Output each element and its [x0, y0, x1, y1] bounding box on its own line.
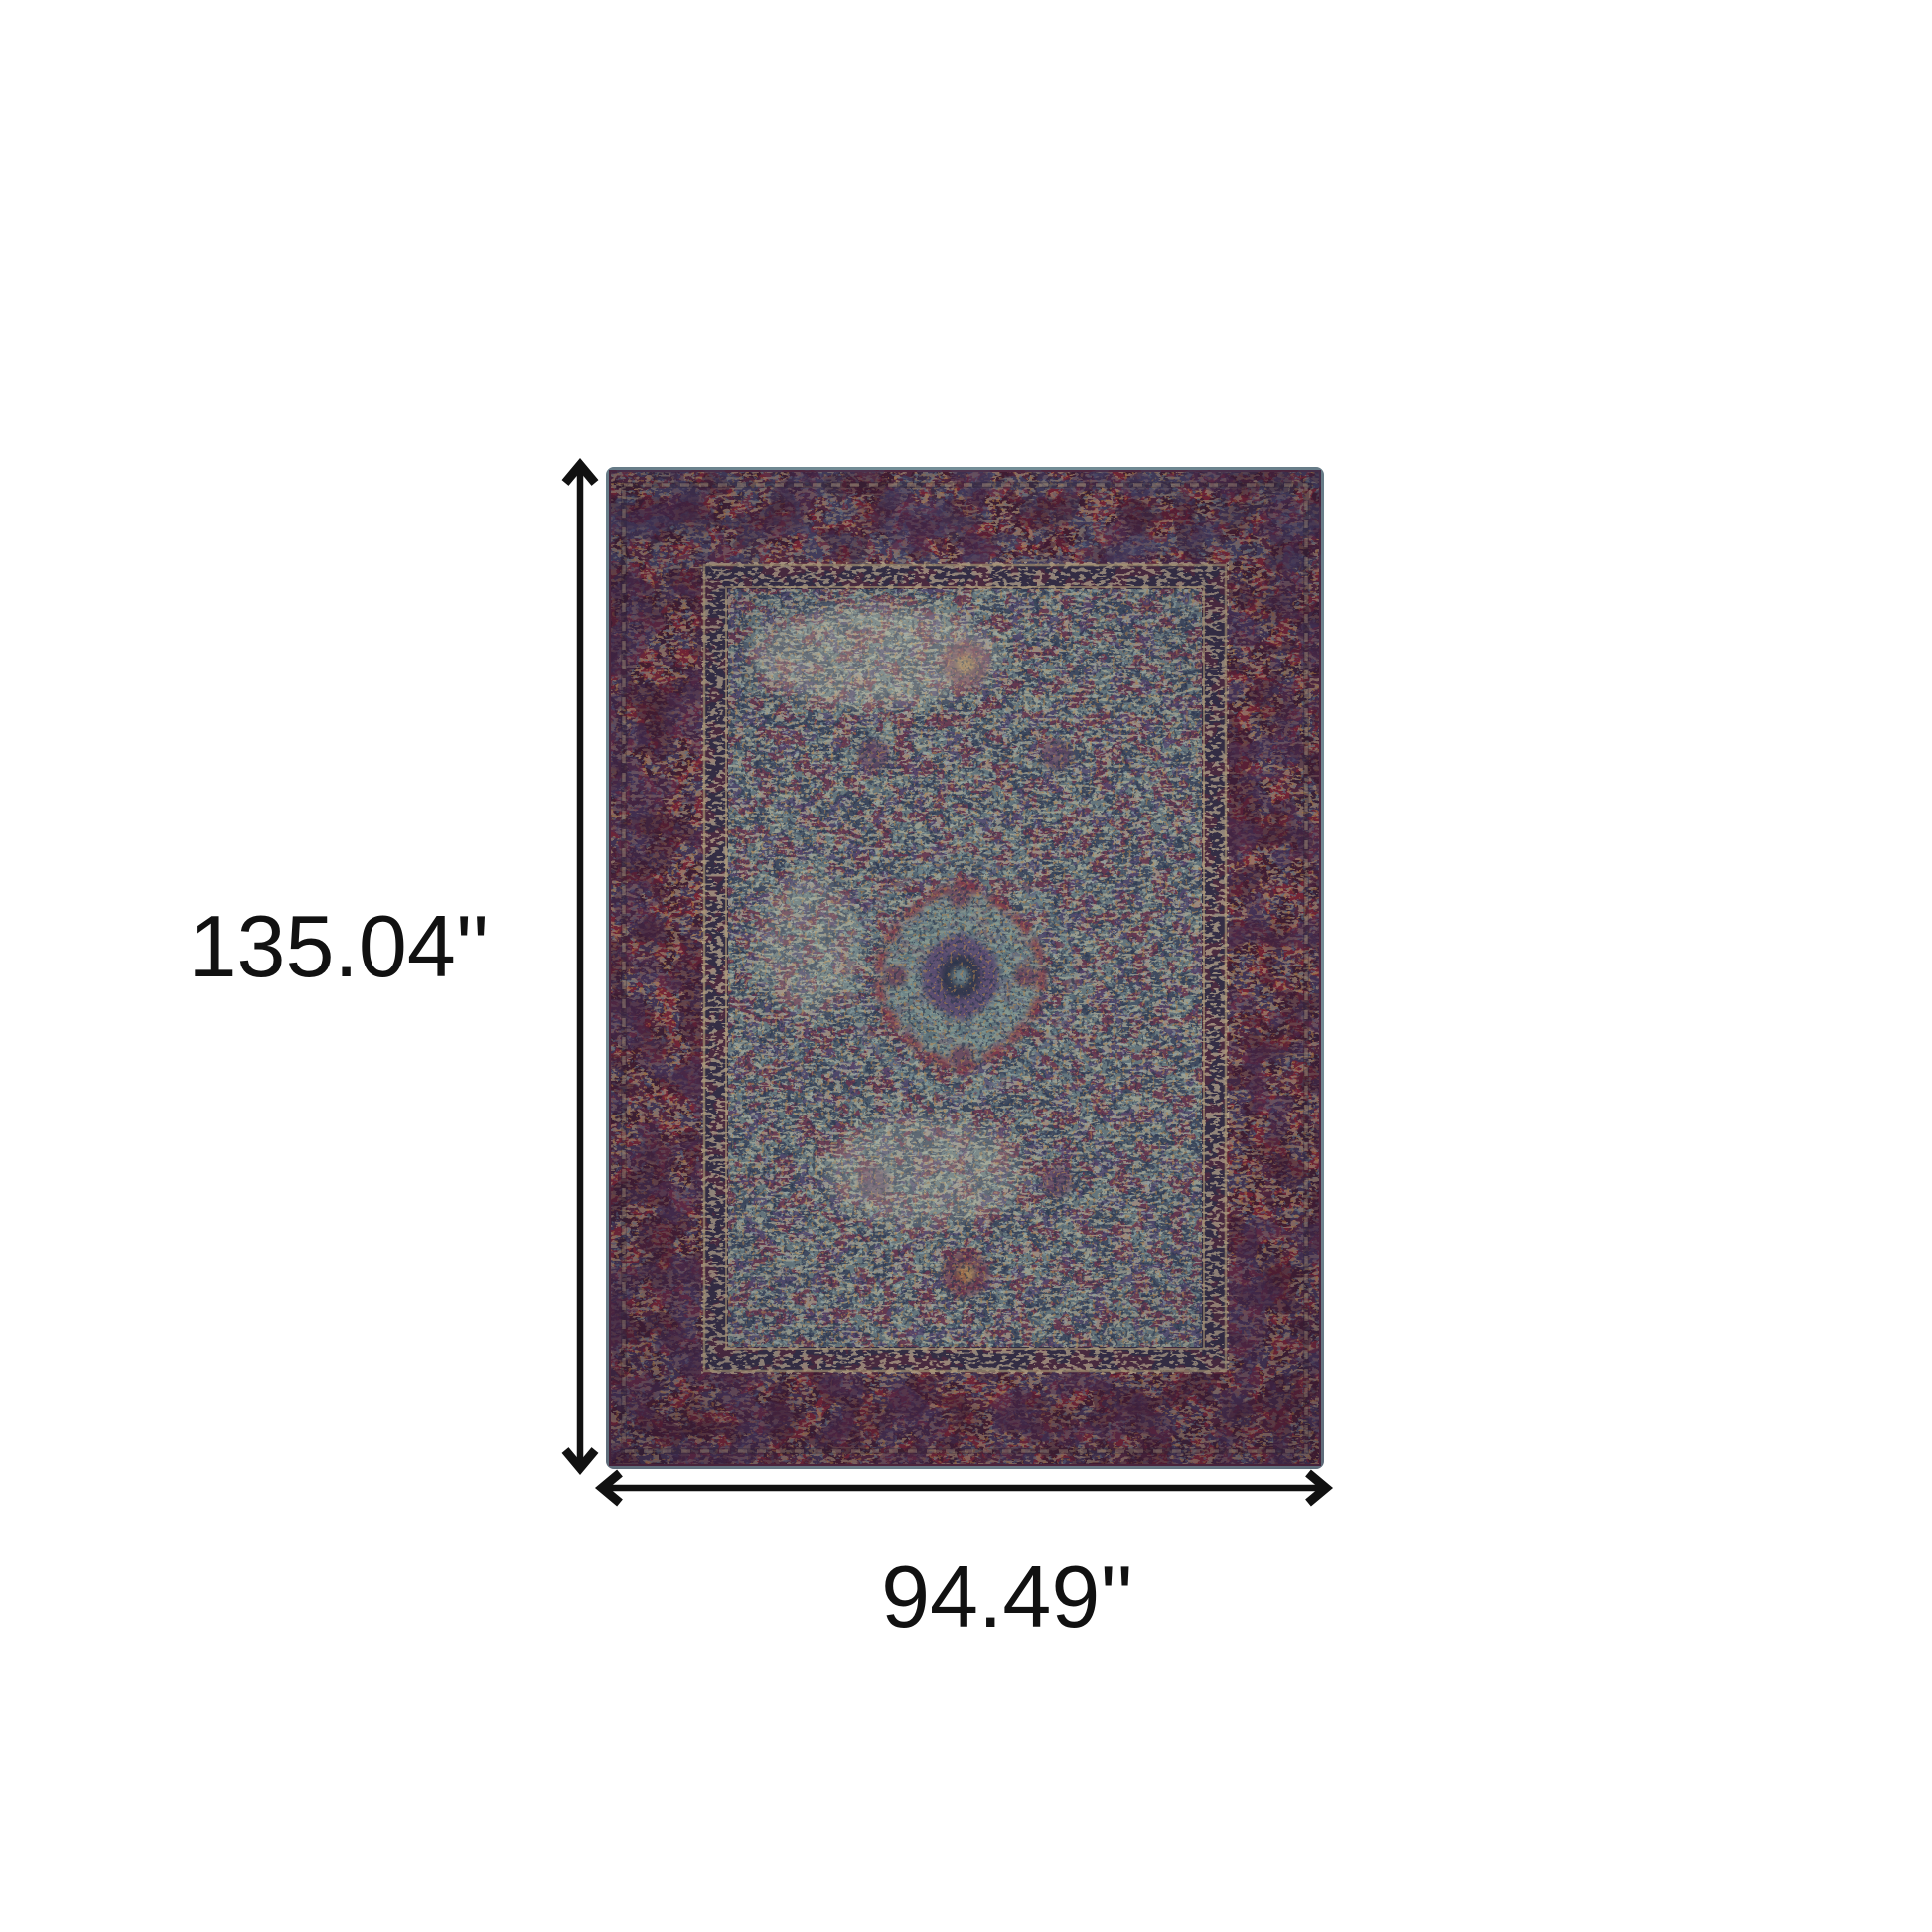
svg-text:94.49'': 94.49''	[881, 1548, 1133, 1646]
svg-text:135.04'': 135.04''	[189, 897, 490, 995]
